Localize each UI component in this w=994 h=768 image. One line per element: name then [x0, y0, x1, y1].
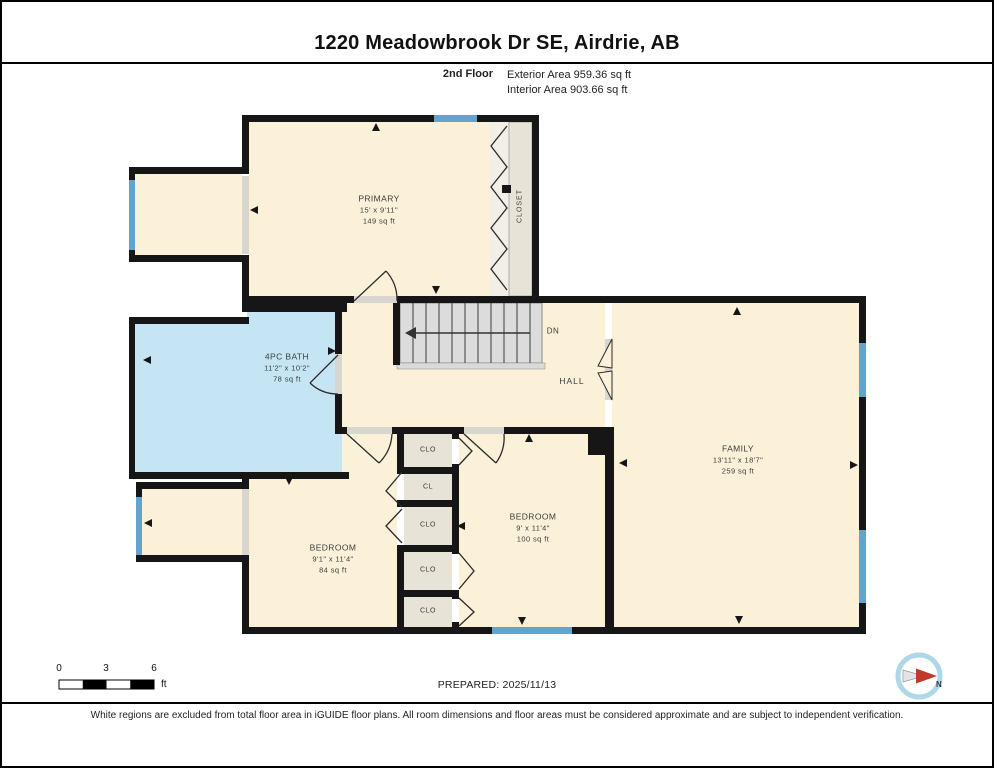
room-name: FAMILY — [713, 444, 763, 455]
room-name: BEDROOM — [510, 512, 557, 523]
room-name: 4PC BATH — [264, 352, 310, 363]
closet-label: CLOSET — [517, 189, 524, 223]
north-label: N — [936, 680, 942, 689]
room-dims: 9' x 11'4" — [510, 523, 557, 534]
room-area: 84 sq ft — [310, 565, 357, 576]
stairs-icon — [397, 303, 545, 369]
scale-tick-6: 6 — [151, 663, 157, 674]
scale-tick-0: 0 — [56, 663, 62, 674]
floorplan-page: 1220 Meadowbrook Dr SE, Airdrie, AB 2nd … — [0, 0, 994, 768]
hall-label: HALL — [559, 376, 584, 386]
room-fill-primary-nook — [135, 174, 242, 255]
floorplan-drawing — [2, 2, 992, 766]
room-dims: 11'2" x 10'2" — [264, 363, 310, 374]
closet-cell-label: CLO — [420, 522, 436, 529]
room-area: 259 sq ft — [713, 466, 763, 477]
closet-cell-label: CLO — [420, 567, 436, 574]
disclaimer-text: White regions are excluded from total fl… — [2, 710, 992, 721]
room-area: 78 sq ft — [264, 374, 310, 385]
footer-divider — [2, 702, 992, 704]
room-label-bath: 4PC BATH 11'2" x 10'2" 78 sq ft — [264, 352, 310, 385]
scale-tick-3: 3 — [103, 663, 109, 674]
prepared-date: PREPARED: 2025/11/13 — [2, 679, 992, 691]
room-fill-bath — [135, 305, 342, 472]
room-label-bedroom2: BEDROOM 9' x 11'4" 100 sq ft — [510, 512, 557, 545]
room-dims: 9'1" x 11'4" — [310, 554, 357, 565]
room-area: 100 sq ft — [510, 534, 557, 545]
room-fill-bedroom1-nook — [142, 489, 242, 555]
room-dims: 13'11" x 18'7" — [713, 455, 763, 466]
room-name: BEDROOM — [310, 543, 357, 554]
stairs-down-label: DN — [547, 327, 560, 336]
room-name: PRIMARY — [358, 194, 399, 205]
room-label-bedroom1: BEDROOM 9'1" x 11'4" 84 sq ft — [310, 543, 357, 576]
closet-cell-label: CLO — [420, 608, 436, 615]
room-label-primary: PRIMARY 15' x 9'11" 149 sq ft — [358, 194, 399, 227]
room-area: 149 sq ft — [358, 216, 399, 227]
room-label-family: FAMILY 13'11" x 18'7" 259 sq ft — [713, 444, 763, 477]
closet-cell-label: CL — [423, 484, 433, 491]
closet-cell-label: CLO — [420, 447, 436, 454]
room-dims: 15' x 9'11" — [358, 205, 399, 216]
